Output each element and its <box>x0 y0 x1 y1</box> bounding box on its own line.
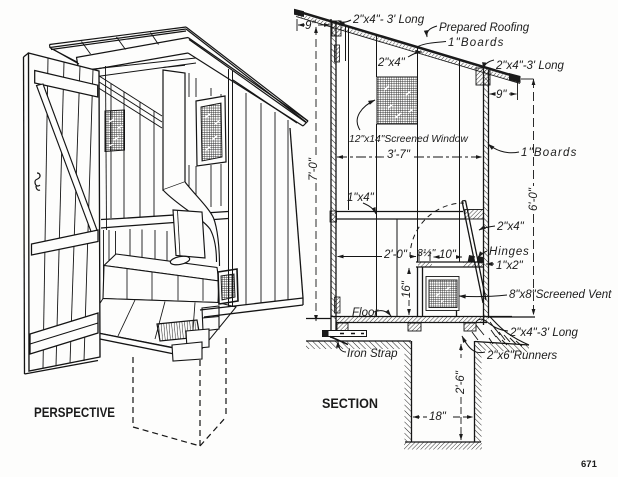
svg-text:Hinges: Hinges <box>489 246 530 258</box>
svg-text:7'-0": 7'-0" <box>308 157 320 181</box>
svg-text:9": 9" <box>496 89 507 101</box>
svg-text:6'-0": 6'-0" <box>528 187 540 211</box>
svg-text:Iron Strap: Iron Strap <box>347 348 398 360</box>
svg-text:2"x4"-3' Long: 2"x4"-3' Long <box>495 60 565 72</box>
svg-text:PERSPECTIVE: PERSPECTIVE <box>34 404 115 420</box>
svg-text:671: 671 <box>581 459 598 470</box>
svg-text:Floor: Floor <box>352 307 379 319</box>
svg-text:12"x14"Screened Window: 12"x14"Screened Window <box>349 134 468 145</box>
svg-text:10": 10" <box>439 249 457 261</box>
svg-text:9": 9" <box>305 20 316 32</box>
svg-text:1"x2": 1"x2" <box>496 260 524 272</box>
svg-text:18": 18" <box>429 411 447 423</box>
svg-text:16": 16" <box>401 280 413 298</box>
svg-text:1"Boards: 1"Boards <box>448 37 505 49</box>
svg-text:Prepared Roofing: Prepared Roofing <box>439 22 530 34</box>
svg-text:SECTION: SECTION <box>322 395 378 411</box>
svg-text:1"x4": 1"x4" <box>347 192 375 204</box>
svg-text:8"x8"Screened Vent: 8"x8"Screened Vent <box>509 289 612 301</box>
svg-text:1"Boards: 1"Boards <box>521 147 578 159</box>
svg-text:3½": 3½" <box>417 247 437 259</box>
svg-text:2"x6"Runners: 2"x6"Runners <box>486 350 557 362</box>
svg-text:2"x4"-3' Long: 2"x4"-3' Long <box>509 327 579 339</box>
svg-text:2"x4": 2"x4" <box>496 221 525 233</box>
svg-text:2'-6": 2'-6" <box>455 370 467 395</box>
svg-text:2"x4"- 3' Long: 2"x4"- 3' Long <box>352 14 425 26</box>
svg-text:2'-0": 2'-0" <box>383 249 408 261</box>
svg-text:3'-7": 3'-7" <box>387 149 411 161</box>
svg-text:2"x4": 2"x4" <box>377 57 406 69</box>
